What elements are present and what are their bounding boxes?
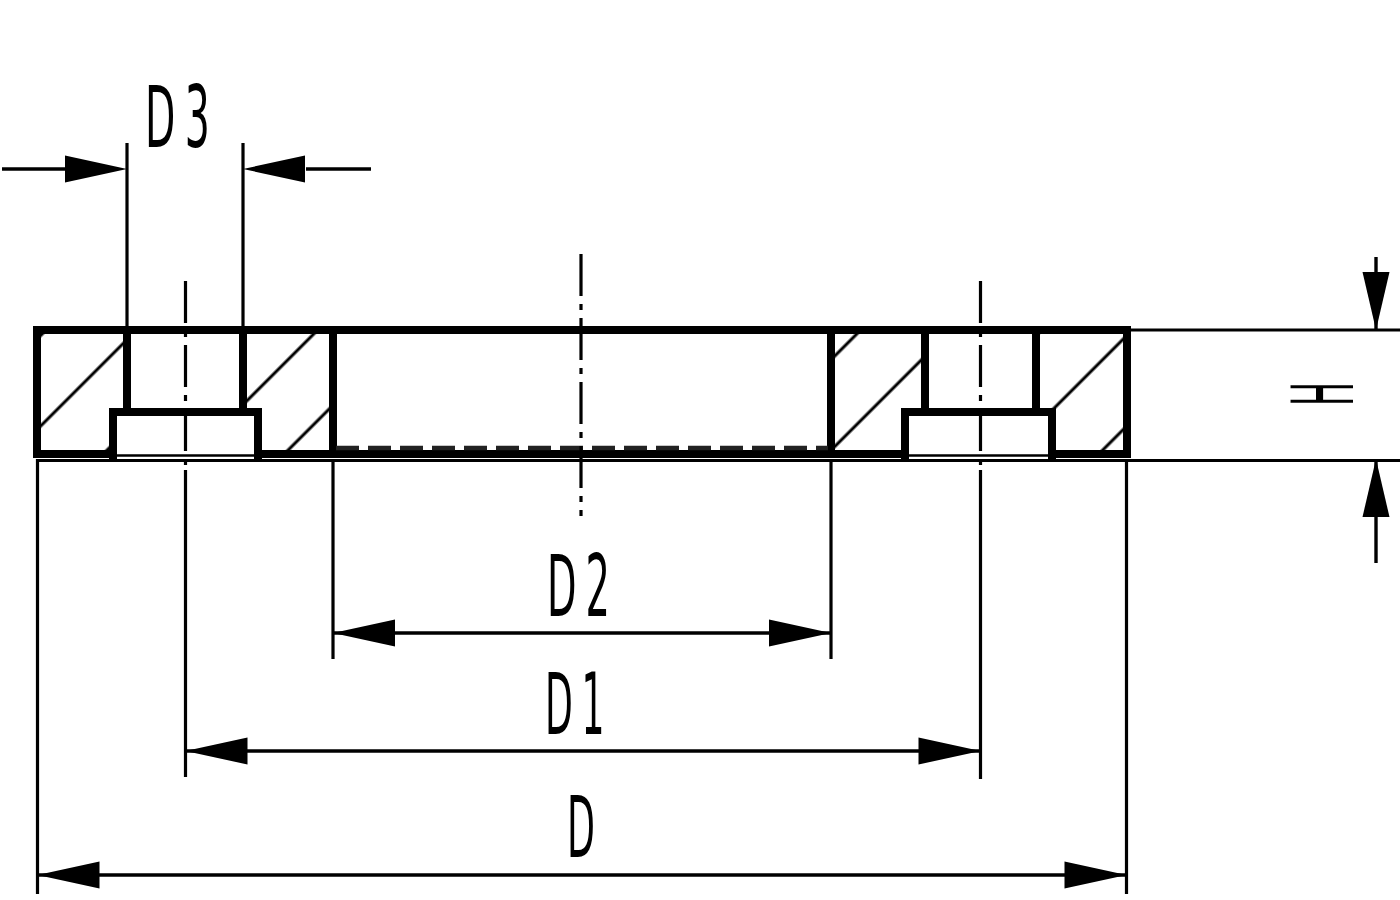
- dimension-label-h: H: [1274, 382, 1373, 406]
- dimension-label-d2: D2: [547, 537, 619, 636]
- dimension-label-d1: D1: [545, 655, 613, 754]
- technical-drawing-canvas: D3 D2 D1 D H: [0, 0, 1400, 900]
- dimension-label-d3: D3: [145, 68, 219, 167]
- flange-section-drawing: D3 D2 D1 D H: [0, 0, 1400, 900]
- dimension-label-d: D: [567, 778, 595, 877]
